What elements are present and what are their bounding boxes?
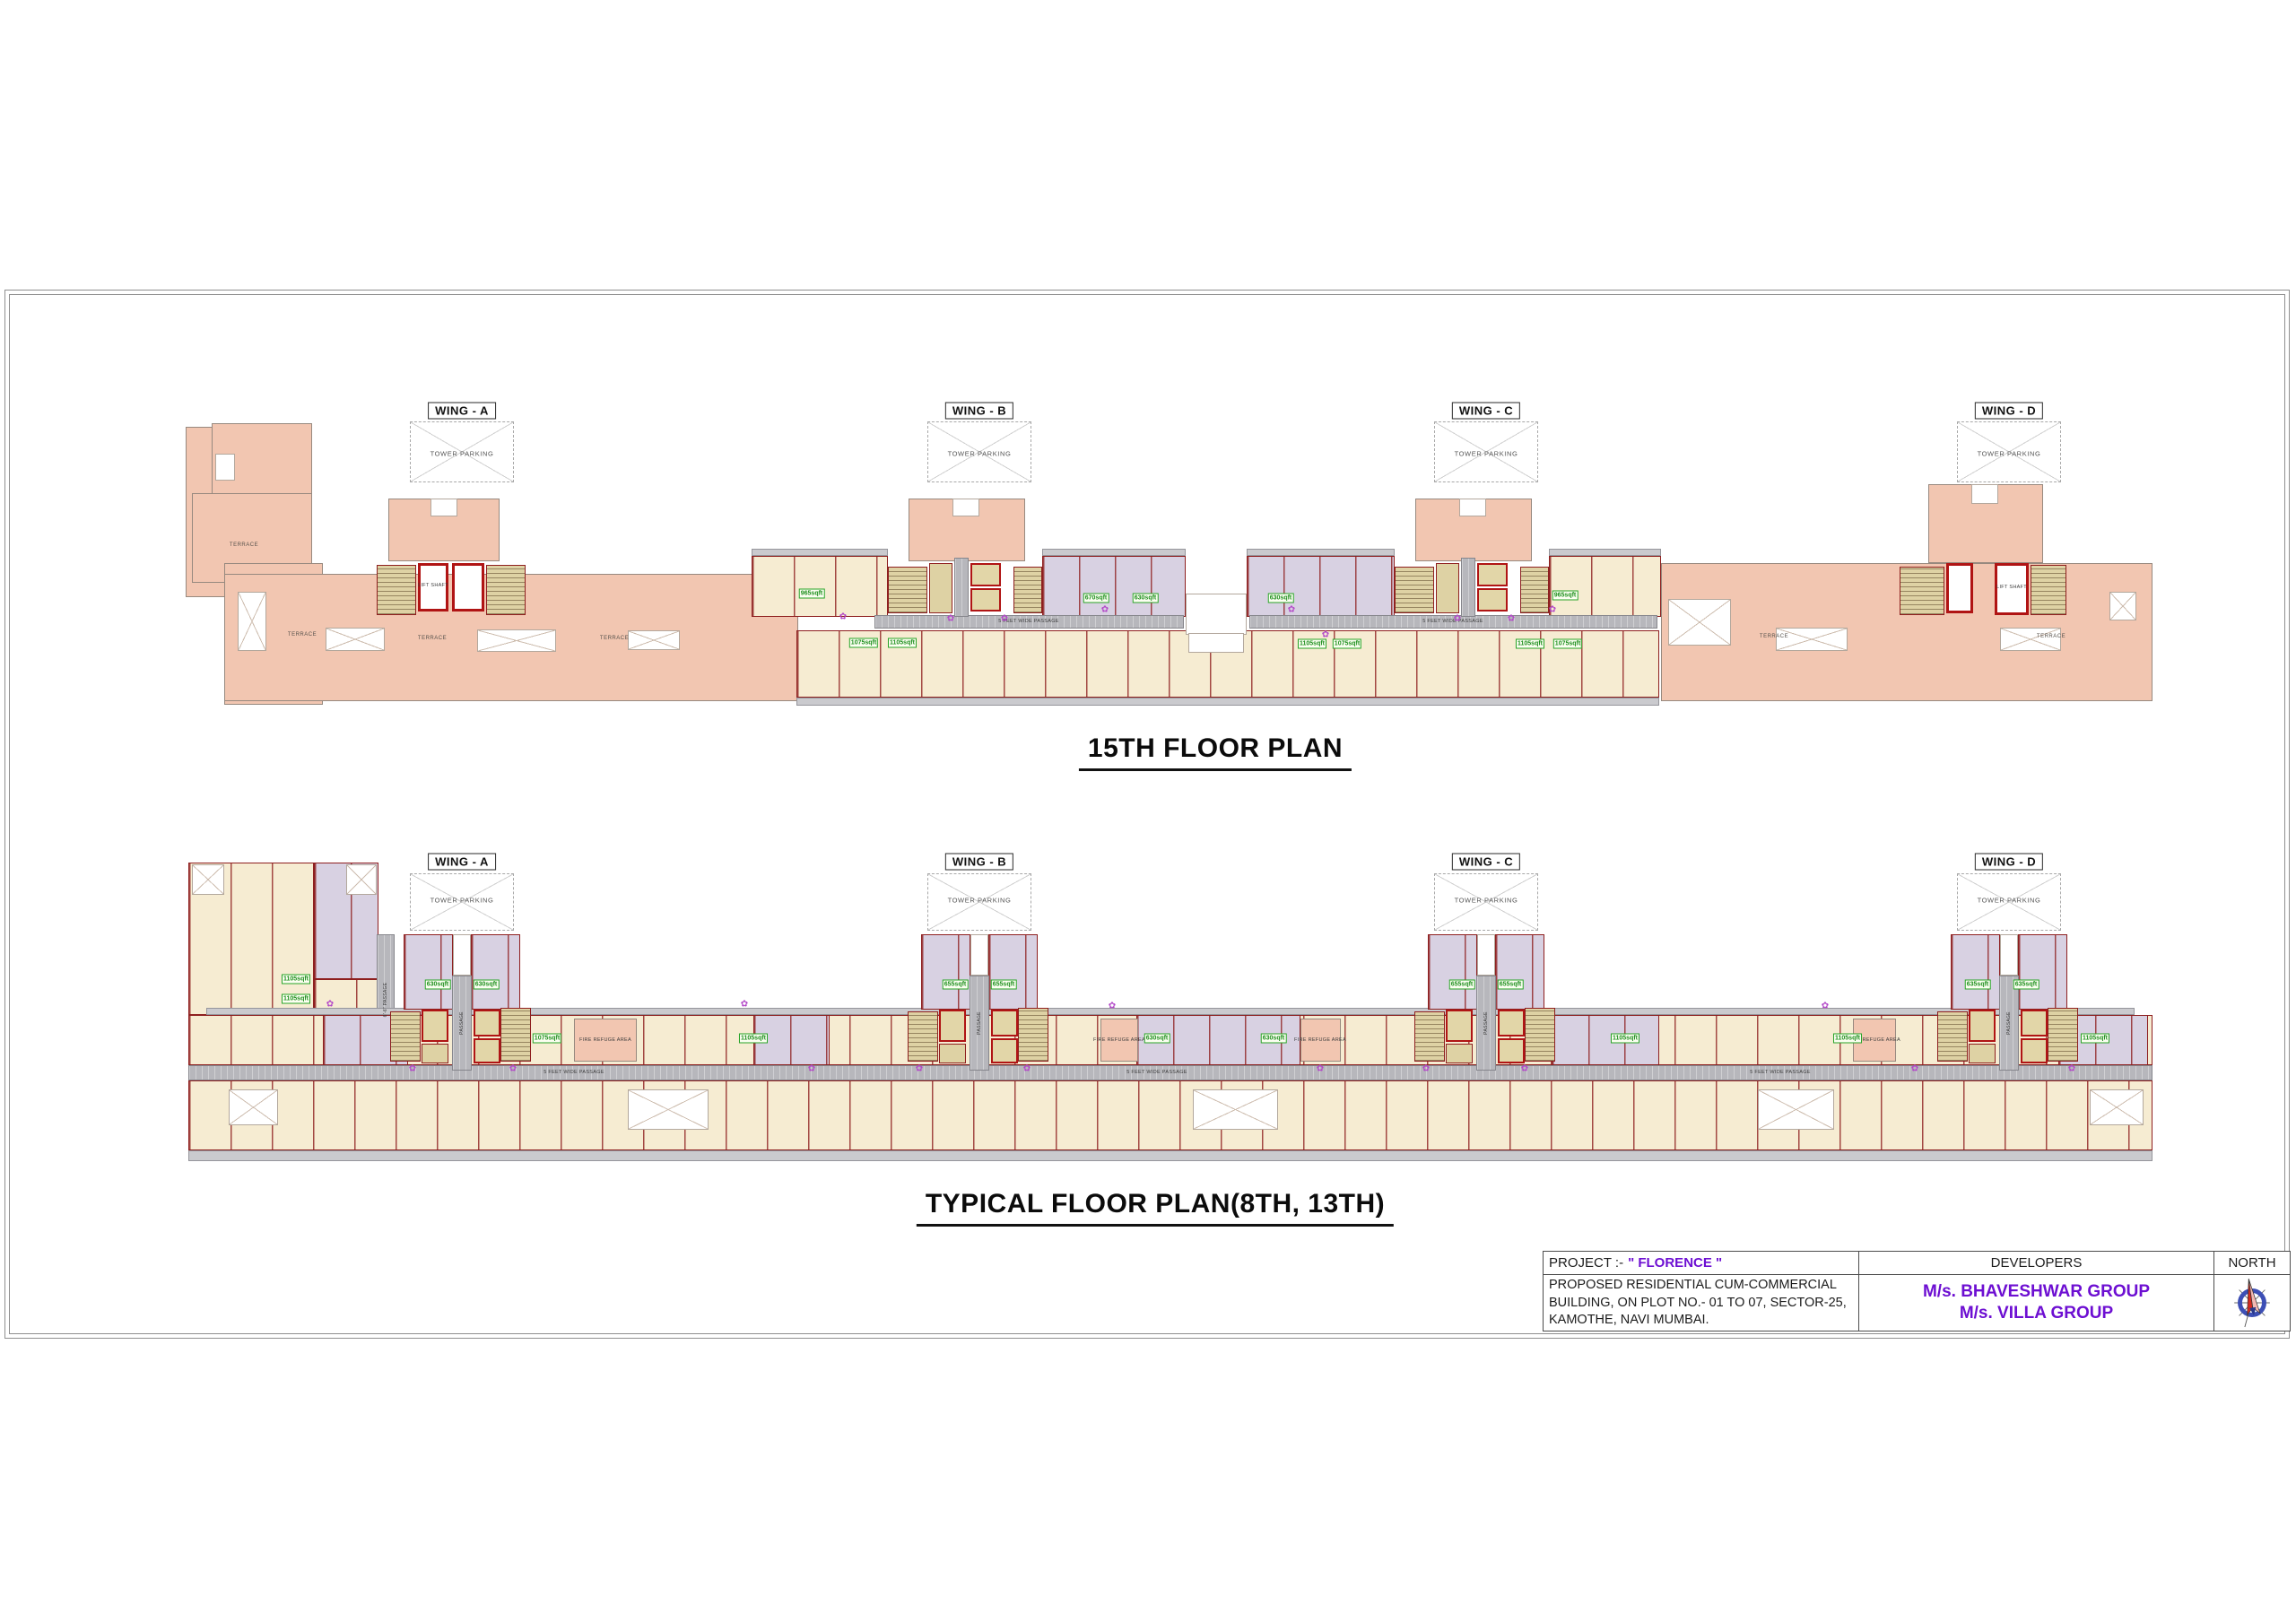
flower-icon: ✿ (1822, 1002, 1829, 1011)
area-badge: 965sqft (1552, 591, 1578, 601)
unit-row-lavender (2018, 934, 2067, 1010)
terrace-label: TERRACE (1760, 634, 1788, 639)
wing-label: WING - C (1452, 403, 1520, 420)
cutout (453, 934, 471, 976)
area-badge: 1075sqft (1333, 639, 1361, 649)
service-core (939, 1044, 966, 1063)
unit-row-lavender (1552, 1015, 1659, 1065)
title-block: PROJECT :- " FLORENCE " DEVELOPERS NORTH… (1543, 1251, 2291, 1331)
area-badge: 1105sqft (1611, 1034, 1639, 1044)
area-badge: 1105sqft (282, 975, 310, 984)
terrace-label: TERRACE (418, 636, 447, 641)
passage-label-vertical: PASSAGE (459, 1011, 465, 1035)
parking-label: TOWER PARKING (1455, 450, 1518, 458)
open-cutout (229, 1089, 278, 1125)
compass-icon (2228, 1277, 2276, 1329)
parking-label: TOWER PARKING (1978, 450, 2041, 458)
unit-row-lavender (1428, 934, 1477, 1010)
lift (1446, 1010, 1473, 1042)
lift (2021, 1038, 2048, 1063)
area-badge: 1075sqft (533, 1034, 561, 1044)
open-cutout (346, 864, 377, 895)
project-name: " FLORENCE " (1628, 1255, 1722, 1271)
lift (939, 1010, 966, 1042)
lift (474, 1010, 500, 1037)
project-label: PROJECT :- (1549, 1255, 1623, 1271)
flower-icon: ✿ (1422, 1064, 1430, 1074)
passage-label: 5 FEET WIDE PASSAGE (1750, 1070, 1811, 1075)
area-badge: 655sqft (1498, 980, 1524, 990)
staircase (500, 1008, 531, 1062)
area-badge: 1105sqft (282, 994, 310, 1004)
passage-label: 5 FEET WIDE PASSAGE (544, 1070, 604, 1075)
service-core (1969, 1044, 1996, 1063)
passage-label-vertical: 6'-6" PASSAGE (383, 983, 388, 1018)
passage-label-vertical: PASSAGE (1483, 1011, 1489, 1035)
cutout (1477, 934, 1495, 976)
flower-icon: ✿ (1508, 614, 1515, 624)
developers-header: DEVELOPERS (1859, 1252, 2214, 1275)
flower-icon: ✿ (1101, 605, 1109, 615)
lift (1498, 1010, 1525, 1037)
staircase (1414, 1011, 1445, 1062)
parking-label: TOWER PARKING (430, 450, 494, 458)
wing-label: WING - A (428, 854, 496, 871)
service-core (422, 1044, 448, 1063)
flower-icon: ✿ (1001, 614, 1008, 624)
area-badge: 630sqft (1144, 1034, 1170, 1044)
flower-icon: ✿ (409, 1064, 416, 1074)
flower-icon: ✿ (2068, 1064, 2075, 1074)
plan-title-typical-floor: TYPICAL FLOOR PLAN(8TH, 13TH) (917, 1189, 1394, 1227)
area-badge: 630sqft (1268, 594, 1294, 603)
service-core (1446, 1044, 1473, 1063)
area-badge: 655sqft (1449, 980, 1475, 990)
passage-label: 5 FEET WIDE PASSAGE (1126, 1070, 1187, 1075)
open-cutout (192, 864, 224, 895)
flower-icon: ✿ (1322, 630, 1329, 640)
flower-icon: ✿ (1109, 1002, 1116, 1011)
flower-icon: ✿ (1288, 605, 1295, 615)
wing-label: WING - D (1975, 403, 2043, 420)
project-row: PROJECT :- " FLORENCE " (1544, 1252, 1859, 1275)
floor-plan-typical: WING - AWING - BWING - CWING - DTOWER PA… (0, 0, 2296, 1622)
lift (474, 1038, 500, 1063)
unit-row-lavender (988, 934, 1038, 1010)
unit-row-lavender (1495, 934, 1544, 1010)
terrace-label: TERRACE (230, 542, 258, 548)
open-cutout (1193, 1089, 1278, 1130)
unit-row-lavender (404, 934, 453, 1010)
area-badge: 965sqft (799, 589, 825, 599)
flower-icon: ✿ (1911, 1064, 1918, 1074)
chajja-strip (188, 1150, 2152, 1161)
unit-row-lavender (1951, 934, 2000, 1010)
area-badge: 1105sqft (1298, 639, 1326, 649)
passage-label: FIRE REFUGE AREA (1294, 1037, 1346, 1043)
area-badge: 1075sqft (849, 638, 878, 648)
flower-icon: ✿ (326, 1000, 334, 1010)
passage-label: FIRE REFUGE AREA (1093, 1037, 1145, 1043)
area-badge: 1105sqft (2081, 1034, 2109, 1044)
unit-row-lavender (471, 934, 520, 1010)
flower-icon: ✿ (509, 1064, 517, 1074)
open-cutout (628, 1089, 709, 1130)
wing-label: WING - C (1452, 854, 1520, 871)
flower-icon: ✿ (839, 612, 847, 622)
flower-icon: ✿ (741, 1000, 748, 1010)
terrace-label: TERRACE (2037, 634, 2066, 639)
parking-label: TOWER PARKING (1455, 897, 1518, 905)
area-badge: 1075sqft (1553, 639, 1582, 649)
area-badge: 655sqft (943, 980, 969, 990)
area-badge: 630sqft (1261, 1034, 1287, 1044)
passage-label: LIFT SHAFT (1996, 585, 2027, 590)
lift (1498, 1038, 1525, 1063)
passage-label-vertical: PASSAGE (977, 1011, 982, 1035)
cutout (970, 934, 988, 976)
flower-icon: ✿ (1549, 605, 1556, 615)
north-header: NORTH (2214, 1252, 2290, 1275)
flower-icon: ✿ (808, 1064, 815, 1074)
wing-label: WING - B (945, 403, 1013, 420)
lift (1969, 1010, 1996, 1042)
wing-label: WING - B (945, 854, 1013, 871)
north-compass (2214, 1275, 2290, 1331)
flower-icon: ✿ (947, 614, 954, 624)
staircase (1525, 1008, 1555, 1062)
developers-names: M/s. BHAVESHWAR GROUP M/s. VILLA GROUP (1859, 1275, 2214, 1331)
lift (2021, 1010, 2048, 1037)
parking-label: TOWER PARKING (1978, 897, 2041, 905)
area-badge: 630sqft (425, 980, 451, 990)
flower-icon: ✿ (916, 1064, 923, 1074)
lift (422, 1010, 448, 1042)
area-badge: 630sqft (1133, 594, 1159, 603)
staircase (1937, 1011, 1968, 1062)
area-badge: 630sqft (474, 980, 500, 990)
parking-label: TOWER PARKING (948, 897, 1012, 905)
flower-icon: ✿ (1454, 614, 1461, 624)
plan-title-15th-floor: 15TH FLOOR PLAN (1079, 733, 1352, 771)
area-badge: 655sqft (991, 980, 1017, 990)
area-badge: 635sqft (1965, 980, 1991, 990)
area-badge: 670sqft (1083, 594, 1109, 603)
area-badge: 1105sqft (888, 638, 917, 648)
area-badge: 1105sqft (1516, 639, 1544, 649)
open-cutout (1758, 1089, 1834, 1130)
staircase (390, 1011, 421, 1062)
terrace-label: TERRACE (600, 636, 629, 641)
parking-label: TOWER PARKING (430, 897, 494, 905)
flower-icon: ✿ (1023, 1064, 1031, 1074)
passage-label-vertical: PASSAGE (2006, 1011, 2012, 1035)
wing-label: WING - D (1975, 854, 2043, 871)
staircase (908, 1011, 938, 1062)
wing-label: WING - A (428, 403, 496, 420)
passage-label: LIFT SHAFT (418, 583, 448, 588)
cutout (2000, 934, 2018, 976)
parking-label: TOWER PARKING (948, 450, 1012, 458)
area-badge: 1105sqft (1833, 1034, 1862, 1044)
project-description: PROPOSED RESIDENTIAL CUM-COMMERCIAL BUIL… (1544, 1275, 1859, 1331)
unit-row-lavender (921, 934, 970, 1010)
drawing-sheet: WING - AWING - BWING - CWING - DTOWER PA… (0, 0, 2296, 1622)
staircase (1018, 1008, 1048, 1062)
flower-icon: ✿ (1521, 1064, 1528, 1074)
unit-row (188, 1080, 2152, 1150)
area-badge: 635sqft (2013, 980, 2039, 990)
passage-label: FIRE REFUGE AREA (579, 1037, 631, 1043)
flower-icon: ✿ (1317, 1064, 1324, 1074)
terrace-label: TERRACE (288, 632, 317, 638)
lift (991, 1010, 1018, 1037)
area-badge: 1105sqft (739, 1034, 768, 1044)
open-cutout (2090, 1089, 2144, 1125)
lift (991, 1038, 1018, 1063)
staircase (2048, 1008, 2078, 1062)
